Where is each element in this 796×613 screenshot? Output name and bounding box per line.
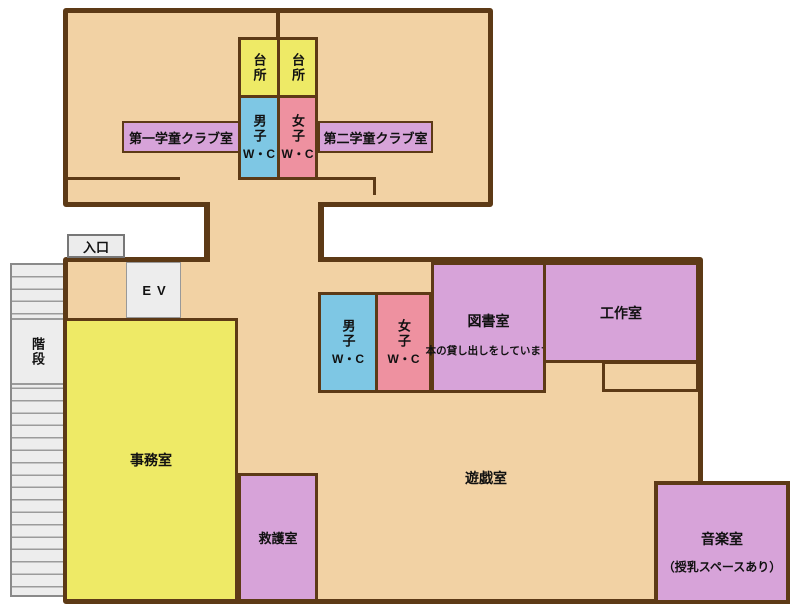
club-room-1-label: 第一学童クラブ室 (129, 128, 233, 147)
stairs-label: 階段 (28, 337, 47, 367)
stairs-landing: 階段 (12, 318, 63, 385)
kitchen-right-label: 台所 (288, 53, 307, 83)
office-room: 事務室 (64, 318, 238, 602)
entrance-label: 入口 (83, 237, 109, 256)
boys-wc-upper-room: 男子 W・C (238, 95, 280, 180)
club-room-2-label: 第二学童クラブ室 (323, 128, 427, 147)
club-room-2-label-box: 第二学童クラブ室 (318, 121, 433, 153)
corridor-wall-return (373, 177, 376, 195)
girls-wc-upper-room: 女子 W・C (277, 95, 318, 180)
kitchen-right-room: 台所 (277, 37, 318, 98)
music-room-note: （授乳スペースあり） (663, 558, 782, 575)
kitchen-left-label: 台所 (250, 53, 269, 83)
library-room: 図書室 本の貸し出しをしています (431, 262, 546, 393)
entrance-label-box: 入口 (67, 234, 125, 258)
craft-room-label: 工作室 (600, 303, 642, 323)
boys-wc-lower-room: 男子 W・C (318, 292, 378, 393)
music-room: 音楽室 （授乳スペースあり） (654, 481, 790, 604)
girls-wc-lower-room: 女子 W・C (375, 292, 432, 393)
boys-wc-upper-sublabel: W・C (243, 145, 275, 162)
kitchen-left-room: 台所 (238, 37, 280, 98)
girls-wc-upper-label: 女子 (288, 114, 307, 144)
kitchen-divider-wall (276, 13, 280, 39)
first-aid-label: 救護室 (258, 528, 297, 547)
craft-room: 工作室 (543, 262, 699, 363)
play-room-label: 遊戯室 (436, 468, 536, 488)
library-label: 図書室 (468, 311, 510, 331)
office-label: 事務室 (130, 450, 172, 470)
elevator-label: EV (142, 283, 171, 298)
library-note: 本の貸し出しをしています (426, 343, 552, 358)
girls-wc-lower-label: 女子 (394, 319, 413, 349)
connecting-corridor (204, 202, 324, 262)
corridor-wall-left (68, 177, 180, 180)
girls-wc-lower-sublabel: W・C (388, 350, 420, 367)
floor-plan: 階段 入口 EV 台所 台所 男子 W・C 女子 W・C 第一学童クラブ室 第二… (0, 0, 796, 613)
corridor-wall-right (318, 177, 376, 180)
staircase: 階段 (10, 263, 65, 597)
boys-wc-lower-label: 男子 (339, 319, 358, 349)
boys-wc-lower-sublabel: W・C (332, 350, 364, 367)
first-aid-room: 救護室 (238, 473, 318, 602)
girls-wc-upper-sublabel: W・C (282, 145, 314, 162)
craft-room-alcove (602, 361, 699, 392)
boys-wc-upper-label: 男子 (250, 114, 269, 144)
music-room-label: 音楽室 (701, 529, 743, 549)
club-room-1-label-box: 第一学童クラブ室 (122, 121, 240, 153)
elevator-box: EV (126, 262, 181, 318)
